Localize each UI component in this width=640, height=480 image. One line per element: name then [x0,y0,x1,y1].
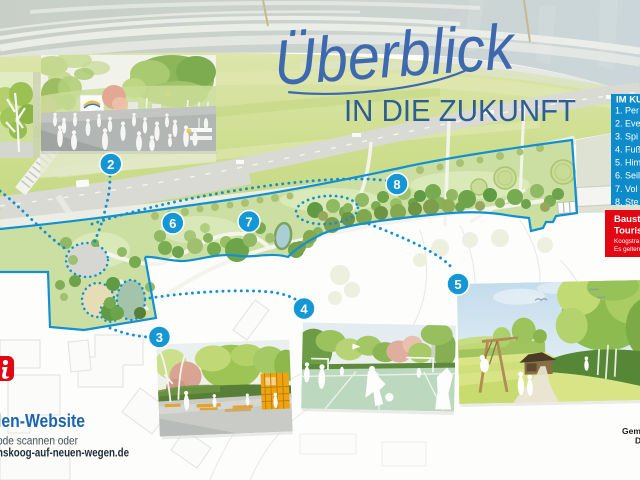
svg-text:6: 6 [169,216,176,231]
svg-text:Bauste: Bauste [614,214,640,225]
svg-text:D: D [635,436,640,446]
svg-text:len-Website: len-Website [0,410,85,431]
svg-text:7. Vol: 7. Vol [615,184,638,194]
svg-text:3: 3 [156,330,163,345]
svg-text:IM KU: IM KU [616,95,640,106]
svg-text:3. Spi: 3. Spi [615,132,638,142]
svg-text:Es gelten: Es gelten [614,246,640,253]
svg-text:Koogstra: Koogstra [614,238,640,245]
svg-text:2: 2 [107,157,114,172]
svg-text:Touris: Touris [614,226,640,237]
svg-text:IN DIE ZUKUNFT: IN DIE ZUKUNFT [344,94,576,128]
svg-text:7: 7 [245,214,252,229]
svg-text:4: 4 [300,301,308,316]
svg-text:8: 8 [393,177,400,192]
svg-text:4. Fuß: 4. Fuß [615,145,640,155]
svg-text:5. Him: 5. Him [615,158,640,168]
svg-text:5: 5 [454,277,461,292]
svg-text:Gem: Gem [622,426,640,436]
svg-text:8. Ste: 8. Ste [615,197,639,207]
svg-text:1. Per: 1. Per [615,106,639,116]
svg-text:2. Eve: 2. Eve [615,119,640,129]
svg-text:6. Seil: 6. Seil [615,171,640,181]
svg-text:hskoog-auf-neuen-wegen.de: hskoog-auf-neuen-wegen.de [0,446,129,460]
